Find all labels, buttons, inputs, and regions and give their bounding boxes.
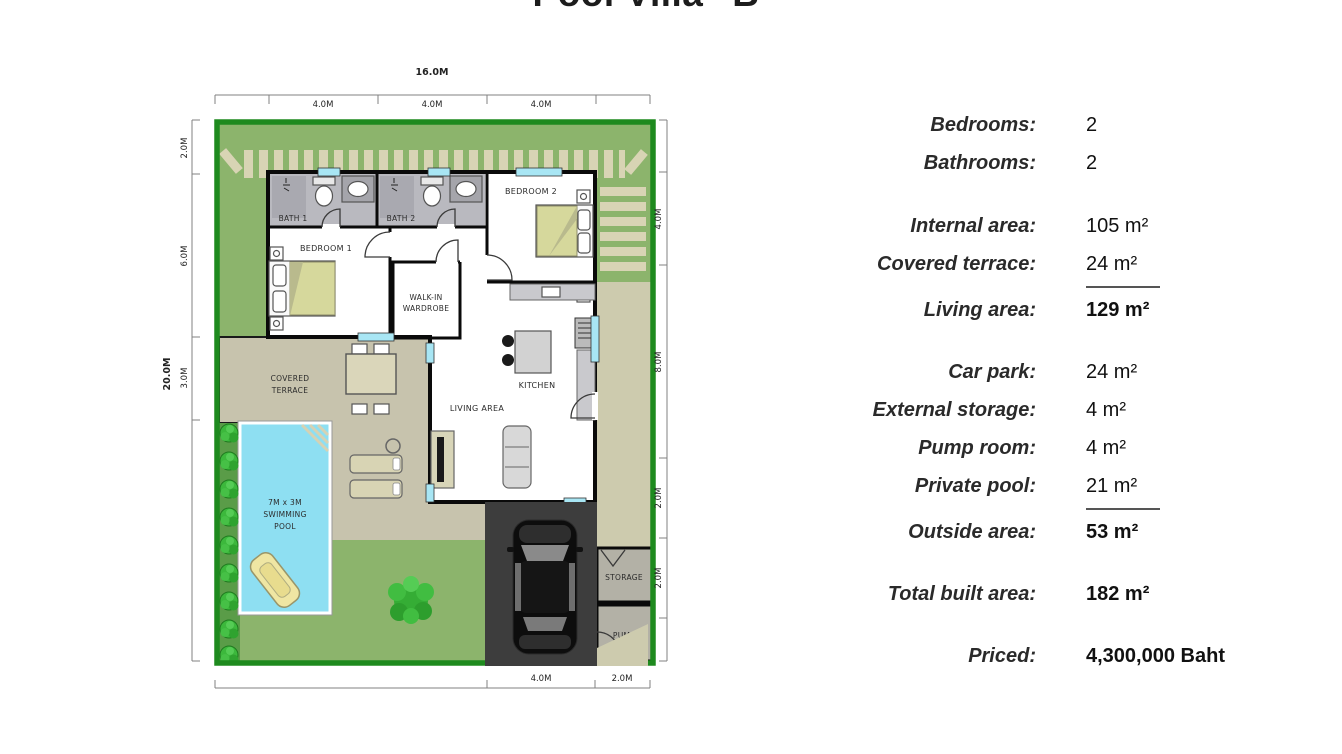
toilet-icon <box>313 177 335 185</box>
side-walkway <box>600 187 646 271</box>
svg-text:6.0M: 6.0M <box>180 246 190 267</box>
specs-panel: Bedrooms: 2 Bathrooms: 2 Internal area: … <box>868 106 1258 675</box>
spec-value: 4 m² <box>1086 437 1126 460</box>
dim-total-width: 16.0M <box>416 67 449 78</box>
window <box>516 168 562 176</box>
pool-label: 7M x 3M <box>268 498 302 507</box>
spec-label: Outside area: <box>868 521 1036 544</box>
svg-text:4.0M: 4.0M <box>422 100 443 110</box>
dining-table <box>346 354 396 394</box>
svg-text:4.0M: 4.0M <box>531 674 552 684</box>
window <box>358 333 394 341</box>
window <box>426 484 434 502</box>
bath2-label: BATH 2 <box>387 214 416 223</box>
svg-text:2.0M: 2.0M <box>612 674 633 684</box>
pillow <box>578 210 590 230</box>
spec-row-priced: Priced: 4,300,000 Baht <box>868 637 1258 675</box>
car-park <box>485 502 597 666</box>
svg-text:TERRACE: TERRACE <box>271 386 309 395</box>
ruler-top: 16.0M 4.0M 4.0M 4.0M <box>215 67 650 110</box>
window <box>318 168 340 176</box>
spec-value: 2 <box>1086 152 1097 175</box>
pillow <box>273 265 286 286</box>
svg-text:POOL: POOL <box>274 522 296 531</box>
spec-label: Bedrooms: <box>868 114 1036 137</box>
spec-row-pump-room: Pump room: 4 m² <box>868 429 1258 467</box>
spec-label: Car park: <box>868 361 1036 384</box>
svg-text:SWIMMING: SWIMMING <box>263 510 306 519</box>
tv-icon <box>437 437 444 482</box>
spec-value: 105 m² <box>1086 215 1148 238</box>
storage-label: STORAGE <box>605 573 643 582</box>
spec-row-external-storage: External storage: 4 m² <box>868 391 1258 429</box>
svg-text:WARDROBE: WARDROBE <box>403 304 450 313</box>
ruler-right: 4.0M 8.0M 2.0M 2.0M <box>654 120 667 661</box>
spec-label: Internal area: <box>868 215 1036 238</box>
spec-label: Covered terrace: <box>868 253 1036 276</box>
window <box>426 343 434 363</box>
spec-label: Private pool: <box>868 475 1036 498</box>
spec-row-private-pool: Private pool: 21 m² <box>868 467 1258 505</box>
pillow <box>578 233 590 253</box>
terrace-label: COVERED <box>271 374 310 383</box>
nightstand <box>577 190 590 203</box>
window <box>428 168 450 176</box>
spec-row-bedrooms: Bedrooms: 2 <box>868 106 1258 144</box>
sum-rule <box>868 283 1258 291</box>
spec-value: 4 m² <box>1086 399 1126 422</box>
spec-value: 182 m² <box>1086 583 1149 606</box>
spec-value: 129 m² <box>1086 299 1149 322</box>
kitchen-island <box>515 331 551 373</box>
chair-icon <box>374 344 389 354</box>
bedroom2-label: BEDROOM 2 <box>505 187 557 196</box>
spec-value: 24 m² <box>1086 253 1137 276</box>
spec-label: Priced: <box>868 645 1036 668</box>
spec-label: Living area: <box>868 299 1036 322</box>
living-label: LIVING AREA <box>450 404 504 413</box>
ruler-bottom: 4.0M 2.0M <box>215 674 650 688</box>
chair-icon <box>374 404 389 414</box>
ruler-left: 2.0M 6.0M 3.0M 20.0M <box>162 120 200 661</box>
floor-plan: 7M x 3M SWIMMING POOL BATH 1 <box>0 0 760 754</box>
sofa-icon <box>503 426 531 488</box>
nightstand <box>270 317 283 330</box>
nightstand <box>270 247 283 260</box>
spec-label: Bathrooms: <box>868 152 1036 175</box>
wardrobe-label: WALK-IN <box>409 293 442 302</box>
page: Pool Villa "B" <box>0 0 1342 754</box>
spec-value: 21 m² <box>1086 475 1137 498</box>
spec-label: Pump room: <box>868 437 1036 460</box>
svg-text:2.0M: 2.0M <box>654 568 664 589</box>
svg-text:4.0M: 4.0M <box>654 209 664 230</box>
spec-row-total-built-area: Total built area: 182 m² <box>868 575 1258 613</box>
spec-value: 4,300,000 Baht <box>1086 645 1225 668</box>
spec-row-car-park: Car park: 24 m² <box>868 353 1258 391</box>
spec-row-internal-area: Internal area: 105 m² <box>868 207 1258 245</box>
spec-value: 2 <box>1086 114 1097 137</box>
svg-text:2.0M: 2.0M <box>180 138 190 159</box>
spec-row-bathrooms: Bathrooms: 2 <box>868 144 1258 182</box>
spec-value: 24 m² <box>1086 361 1137 384</box>
kitchen-sink <box>542 287 560 297</box>
dim-total-height: 20.0M <box>162 358 173 391</box>
spec-row-covered-terrace: Covered terrace: 24 m² <box>868 245 1258 283</box>
spec-row-living-area: Living area: 129 m² <box>868 291 1258 329</box>
spec-label: Total built area: <box>868 583 1036 606</box>
stool-icon <box>502 335 514 347</box>
covered-terrace-floor <box>219 337 430 423</box>
svg-text:4.0M: 4.0M <box>313 100 334 110</box>
svg-text:2.0M: 2.0M <box>654 488 664 509</box>
window <box>591 316 599 362</box>
svg-text:8.0M: 8.0M <box>654 352 664 373</box>
svg-text:4.0M: 4.0M <box>531 100 552 110</box>
storage-room: STORAGE <box>597 548 652 602</box>
chair-icon <box>352 344 367 354</box>
swimming-pool: 7M x 3M SWIMMING POOL <box>238 421 332 615</box>
pillow <box>273 291 286 312</box>
chair-icon <box>352 404 367 414</box>
kitchen-label: KITCHEN <box>519 381 556 390</box>
bedroom1-label: BEDROOM 1 <box>300 244 352 253</box>
spec-row-outside-area: Outside area: 53 m² <box>868 513 1258 551</box>
spec-value: 53 m² <box>1086 521 1138 544</box>
toilet-icon <box>421 177 443 185</box>
spec-label: External storage: <box>868 399 1036 422</box>
sum-rule <box>868 505 1258 513</box>
stool-icon <box>502 354 514 366</box>
car-icon <box>507 520 583 654</box>
bath1-label: BATH 1 <box>279 214 308 223</box>
svg-text:3.0M: 3.0M <box>180 368 190 389</box>
